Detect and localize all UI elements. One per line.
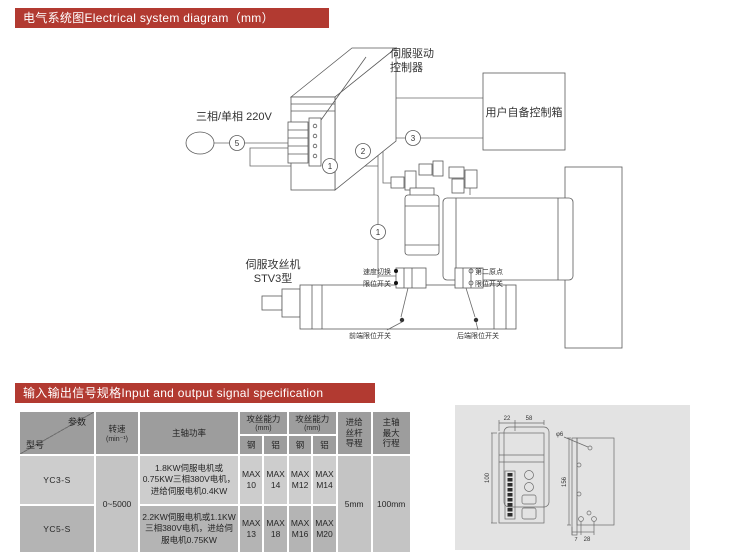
rear-limit-label: 后端限位开关 xyxy=(457,331,499,340)
limit-switch-label-a: 限位开关 xyxy=(363,279,391,288)
tap-steel1-yc3s: MAX 10 xyxy=(240,456,262,504)
table-row: YC3-S 0~5000 1.8KW伺服电机或0.75KW三相380V电机，进给… xyxy=(20,456,410,504)
header-feed-lead: 进给 丝杆 导程 xyxy=(338,412,371,454)
side-view xyxy=(564,437,614,535)
callout-2: 2 xyxy=(361,147,366,156)
callout-1b: 1 xyxy=(376,228,381,237)
connector-round-2 xyxy=(525,483,534,492)
second-origin-label: 第二原点 xyxy=(475,267,503,276)
rear-limit-switch-dot xyxy=(474,318,478,322)
mounting-hole-2 xyxy=(577,463,581,467)
model-yc3s: YC3-S xyxy=(20,456,94,504)
servo-driver-label-line2: 控制器 xyxy=(390,60,423,74)
callout-5: 5 xyxy=(235,139,240,148)
front-limit-switch-dot xyxy=(400,318,404,322)
header-tapping-2: 攻丝能力 (mm) xyxy=(289,412,336,434)
subheader-aluminum-2: 铝 xyxy=(313,436,335,454)
model-yc5s: YC5-S xyxy=(20,506,94,552)
corner-model-label: 型号 xyxy=(26,438,44,451)
tap-steel2-yc5s: MAX M16 xyxy=(289,506,311,552)
dim-100: 100 xyxy=(485,472,491,483)
header-spindle-power: 主轴功率 xyxy=(140,412,238,454)
callout-3: 3 xyxy=(411,134,416,143)
connector-dsub-2 xyxy=(522,508,536,519)
dimension-labels: 22 58 100 156 φ6 7 28 xyxy=(485,416,591,543)
header-tap1-unit: (mm) xyxy=(242,425,285,432)
mounting-slot-2 xyxy=(592,517,597,522)
mounting-hole-4 xyxy=(587,511,591,515)
speed-switch-bracket xyxy=(396,268,426,288)
machine-label-line1: 伺服攻丝机 xyxy=(246,257,301,271)
header-speed: 转速 (min⁻¹) xyxy=(96,412,138,454)
mounting-slot-1 xyxy=(579,517,584,522)
dim-7: 7 xyxy=(574,537,577,543)
machine-label-line2: STV3型 xyxy=(254,271,293,285)
tap-alu1-yc3s: MAX 14 xyxy=(264,456,286,504)
tap-alu1-yc5s: MAX 18 xyxy=(264,506,286,552)
io-spec-banner: 输入输出信号规格Input and output signal specific… xyxy=(15,383,375,403)
power-source-symbol xyxy=(186,132,214,154)
header-tap1-text: 攻丝能力 xyxy=(242,413,285,425)
electrical-system-diagram: 伺服驱动 控制器 三相/单相 220V 用户自备控制箱 5 3 2 1 1 xyxy=(0,0,751,375)
header-tap2-text: 攻丝能力 xyxy=(291,413,334,425)
tap-alu2-yc3s: MAX M14 xyxy=(313,456,335,504)
limit-switch-label-b: 限位开关 xyxy=(475,279,503,288)
front-limit-label: 前端限位开关 xyxy=(349,331,391,340)
limit-switch-bullet xyxy=(394,281,398,285)
spec-table: 参数 型号 转速 (min⁻¹) 主轴功率 攻丝能力 (mm) 攻丝能力 (mm… xyxy=(18,410,412,554)
tap-alu2-yc5s: MAX M20 xyxy=(313,506,335,552)
feed-motor xyxy=(405,188,439,255)
tapping-unit-body xyxy=(262,268,516,330)
power-yc3s: 1.8KW伺服电机或0.75KW三相380V电机，进给伺服电机0.4KW xyxy=(140,456,238,504)
tap-steel1-yc5s: MAX 13 xyxy=(240,506,262,552)
max-stroke-value-cell: 100mm xyxy=(373,456,410,552)
header-speed-unit: (min⁻¹) xyxy=(98,435,136,443)
terminal-block xyxy=(288,122,308,163)
dim-28: 28 xyxy=(584,537,591,543)
tap-steel2-yc3s: MAX M12 xyxy=(289,456,311,504)
speed-value-cell: 0~5000 xyxy=(96,456,138,552)
front-view xyxy=(491,420,549,523)
connector-dsub-1 xyxy=(522,495,536,504)
corner-header-cell: 参数 型号 xyxy=(20,412,94,454)
subheader-aluminum-1: 铝 xyxy=(264,436,286,454)
speed-switch-bullet xyxy=(394,269,398,273)
dimension-drawing: 22 58 100 156 φ6 7 28 xyxy=(455,405,690,550)
subheader-steel-2: 钢 xyxy=(289,436,311,454)
speed-switch-label: 速度切换 xyxy=(363,267,391,276)
dim-156: 156 xyxy=(562,476,568,487)
dimension-drawing-panel: 22 58 100 156 φ6 7 28 xyxy=(455,405,690,550)
connector-round-1 xyxy=(525,471,534,480)
callout-1: 1 xyxy=(328,162,333,171)
dim-58: 58 xyxy=(526,416,533,422)
power-label: 三相/单相 220V xyxy=(196,110,272,123)
power-yc5s: 2.2KW伺服电机或1.1KW三相380V电机，进给伺服电机0.75KW xyxy=(140,506,238,552)
header-tapping-1: 攻丝能力 (mm) xyxy=(240,412,287,434)
header-max-stroke: 主轴 最大 行程 xyxy=(373,412,410,454)
dim-22: 22 xyxy=(504,416,511,422)
feed-lead-value-cell: 5mm xyxy=(338,456,371,552)
header-tap2-unit: (mm) xyxy=(291,425,334,432)
servo-driver-label-line1: 伺服驱动 xyxy=(390,47,434,60)
mounting-plate xyxy=(565,167,622,348)
subheader-steel-1: 钢 xyxy=(240,436,262,454)
dim-hole-dia: φ6 xyxy=(556,432,564,438)
header-speed-text: 转速 xyxy=(98,423,136,435)
mounting-hole-1 xyxy=(588,446,592,450)
mounting-hole-3 xyxy=(577,492,581,496)
corner-param-label: 参数 xyxy=(68,415,86,428)
servo-driver-box xyxy=(288,48,396,190)
user-control-box-label: 用户自备控制箱 xyxy=(486,105,563,119)
